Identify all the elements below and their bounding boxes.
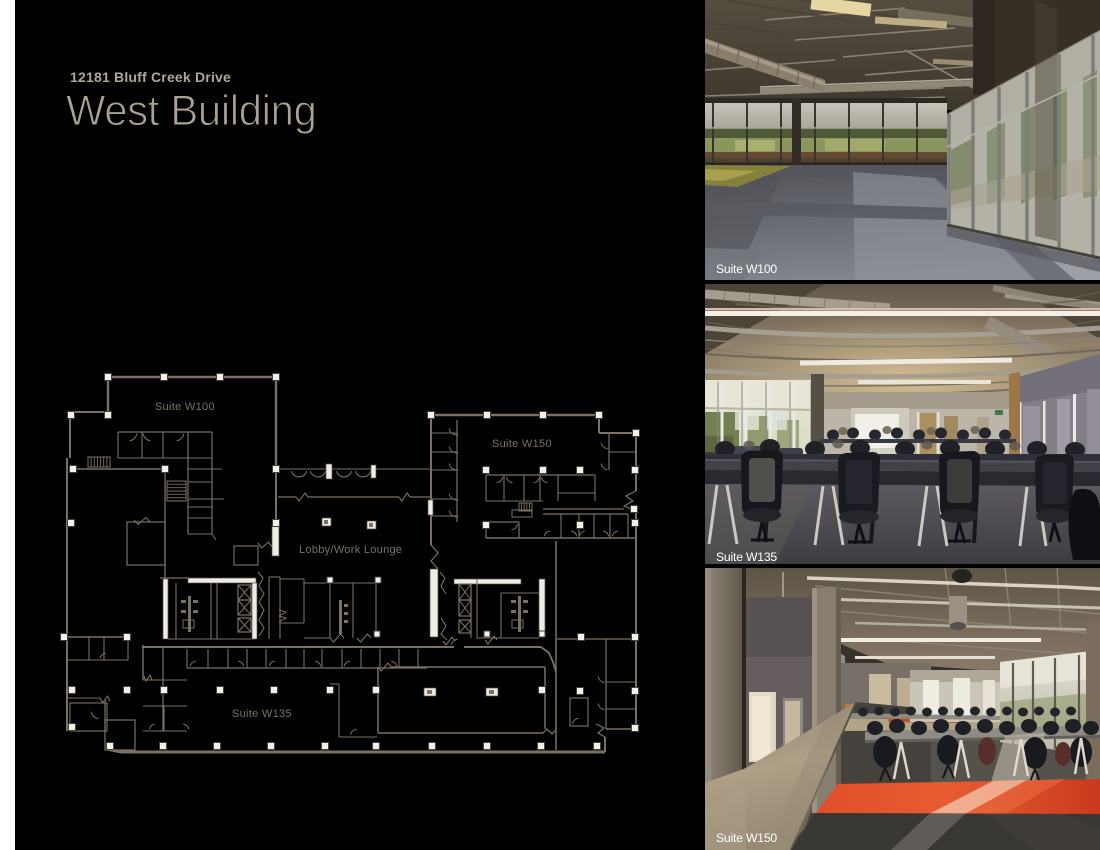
svg-text:Suite W100: Suite W100 xyxy=(155,401,215,413)
svg-text:Suite W150: Suite W150 xyxy=(492,438,552,450)
svg-text:Suite W100: Suite W100 xyxy=(716,262,777,276)
svg-text:Lobby/Work Lounge: Lobby/Work Lounge xyxy=(299,544,402,556)
svg-text:Suite W135: Suite W135 xyxy=(232,708,292,720)
svg-text:Suite W135: Suite W135 xyxy=(716,550,777,564)
svg-text:Suite W150: Suite W150 xyxy=(716,831,777,845)
